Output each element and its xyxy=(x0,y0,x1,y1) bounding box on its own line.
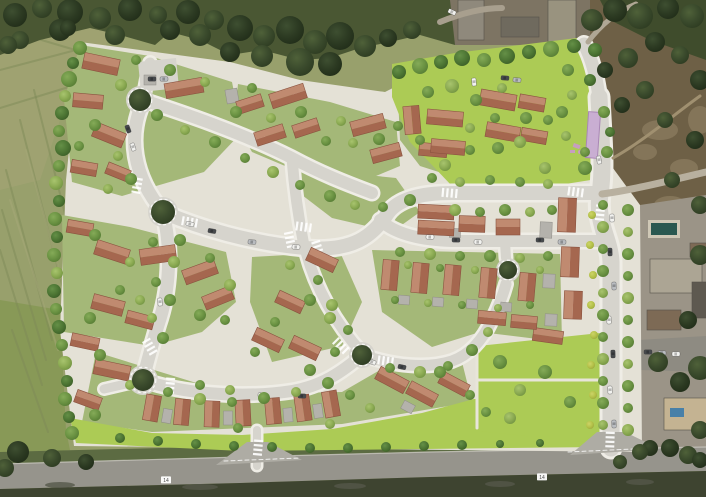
garage xyxy=(545,314,557,326)
tree xyxy=(151,109,163,121)
tree xyxy=(59,90,71,102)
tree xyxy=(227,15,253,41)
tree xyxy=(350,200,360,210)
tree xyxy=(671,46,689,64)
tree xyxy=(253,25,275,47)
tree xyxy=(434,55,448,69)
vegetation-patch xyxy=(45,482,75,488)
tree xyxy=(318,52,342,76)
tree xyxy=(325,419,335,429)
tree xyxy=(499,204,511,216)
car xyxy=(471,78,476,86)
tree xyxy=(525,207,535,217)
tree xyxy=(623,315,633,325)
tree xyxy=(326,299,338,311)
tree xyxy=(587,361,595,369)
tree xyxy=(247,83,257,93)
tree xyxy=(60,20,76,36)
tree xyxy=(209,136,221,148)
tree xyxy=(151,200,175,224)
tree xyxy=(670,372,690,392)
tree xyxy=(305,443,315,453)
tree xyxy=(174,234,186,246)
tree xyxy=(348,138,358,148)
tree xyxy=(258,392,270,404)
tree xyxy=(580,147,590,157)
tree xyxy=(240,153,250,163)
tree xyxy=(113,151,123,161)
tree xyxy=(148,237,158,247)
svg-text:14: 14 xyxy=(539,475,545,481)
tree xyxy=(322,377,334,389)
car xyxy=(612,420,617,428)
house xyxy=(557,198,576,233)
car xyxy=(513,77,521,82)
tree xyxy=(89,229,101,241)
tree xyxy=(304,294,316,306)
tree xyxy=(89,119,101,131)
tree xyxy=(225,385,235,395)
tree xyxy=(598,106,610,118)
tree xyxy=(588,211,596,219)
tree xyxy=(586,241,594,249)
tree xyxy=(58,356,72,370)
tree xyxy=(326,22,354,50)
house xyxy=(235,400,251,427)
house xyxy=(426,109,463,127)
tree xyxy=(679,311,697,329)
tree xyxy=(295,180,305,190)
tree xyxy=(354,35,376,57)
small-pool xyxy=(670,408,684,417)
tree xyxy=(251,45,273,67)
car xyxy=(292,245,300,250)
car xyxy=(160,77,168,81)
tree xyxy=(567,39,581,53)
house xyxy=(560,247,579,278)
tree xyxy=(51,231,63,243)
tree xyxy=(520,112,532,124)
house xyxy=(173,398,190,425)
tree xyxy=(61,71,77,87)
tree xyxy=(403,21,421,39)
tree xyxy=(131,55,141,65)
tree xyxy=(458,301,466,309)
tree xyxy=(618,48,638,68)
tree xyxy=(330,347,340,357)
tree xyxy=(61,375,73,387)
tree xyxy=(56,339,68,351)
tree xyxy=(589,271,597,279)
tree xyxy=(434,366,446,378)
car xyxy=(501,75,509,80)
tree xyxy=(499,261,517,279)
tree xyxy=(336,116,346,126)
tree xyxy=(135,295,145,305)
garage xyxy=(313,403,324,418)
tree xyxy=(47,248,61,262)
tree xyxy=(465,145,475,155)
tree xyxy=(470,94,482,106)
tree xyxy=(483,327,493,337)
tree xyxy=(415,135,425,145)
vegetation-patch xyxy=(334,483,366,489)
vegetation-patch xyxy=(626,479,654,485)
tree xyxy=(7,441,29,463)
tree xyxy=(194,309,206,321)
tree xyxy=(567,90,577,100)
tree xyxy=(391,296,399,304)
tree xyxy=(105,25,125,45)
tree xyxy=(484,250,496,262)
scrub-patch xyxy=(633,144,657,160)
house xyxy=(518,272,536,301)
tree xyxy=(194,393,206,405)
tree xyxy=(43,449,61,467)
tree xyxy=(55,140,71,156)
tree xyxy=(598,244,608,254)
car xyxy=(672,352,680,356)
tree xyxy=(267,166,279,178)
lawn-area xyxy=(478,333,602,444)
garage xyxy=(466,299,478,309)
existing-building xyxy=(501,17,539,37)
tree xyxy=(632,444,648,460)
tree xyxy=(589,391,597,399)
garage xyxy=(432,297,444,307)
house xyxy=(430,139,465,156)
tree xyxy=(598,288,608,298)
tree xyxy=(163,387,173,397)
tree xyxy=(657,112,673,128)
tree xyxy=(220,42,240,62)
tree xyxy=(395,247,405,257)
tree xyxy=(63,411,75,423)
tree xyxy=(189,24,211,46)
tree xyxy=(73,41,87,55)
tree xyxy=(378,202,388,212)
tree xyxy=(454,50,470,66)
existing-building xyxy=(548,0,576,42)
house xyxy=(479,267,498,298)
tree xyxy=(276,16,304,44)
car xyxy=(474,240,482,245)
tree xyxy=(233,423,243,433)
tree xyxy=(536,439,544,447)
tree xyxy=(89,409,101,421)
tree xyxy=(176,0,200,24)
tree xyxy=(597,353,609,365)
car xyxy=(558,240,566,245)
garage xyxy=(283,408,293,423)
tree xyxy=(496,440,504,448)
tree xyxy=(373,133,385,145)
masterplan-aerial-view: 1414 xyxy=(0,0,706,497)
tree xyxy=(55,106,69,120)
tree xyxy=(499,48,515,64)
tree xyxy=(584,74,596,86)
car xyxy=(608,248,613,256)
tree xyxy=(526,301,534,309)
tree xyxy=(515,253,525,263)
tree xyxy=(324,312,336,324)
tree xyxy=(627,3,653,29)
tree xyxy=(250,347,260,357)
tree xyxy=(419,441,429,451)
tree xyxy=(515,177,525,187)
tree xyxy=(180,125,190,135)
tree xyxy=(51,267,63,279)
tree xyxy=(424,248,436,260)
tree xyxy=(436,264,444,272)
tree xyxy=(543,115,553,125)
masterplan-canvas: 1414 xyxy=(0,0,706,497)
tree xyxy=(84,312,96,324)
tree xyxy=(74,141,84,151)
tree xyxy=(160,20,180,40)
tree xyxy=(295,106,307,118)
tree xyxy=(345,390,355,400)
tree xyxy=(50,303,62,315)
tree xyxy=(404,194,416,206)
tree xyxy=(636,81,654,99)
house xyxy=(411,262,430,293)
tree xyxy=(455,177,465,187)
tree xyxy=(414,366,426,378)
tree xyxy=(613,455,627,469)
tree xyxy=(561,131,571,141)
tree xyxy=(424,299,432,307)
tree xyxy=(381,442,391,452)
tree xyxy=(536,266,544,274)
tree xyxy=(115,433,125,443)
tree xyxy=(494,304,502,312)
tree xyxy=(455,251,465,261)
tree xyxy=(270,317,280,327)
tree xyxy=(47,284,61,298)
tree xyxy=(514,136,526,148)
tree xyxy=(227,397,237,407)
vegetation-patch xyxy=(182,484,218,490)
tree xyxy=(581,9,603,31)
tree xyxy=(404,261,412,269)
tree xyxy=(465,123,475,133)
tree xyxy=(564,396,576,408)
car xyxy=(611,350,616,358)
tree xyxy=(485,175,495,185)
house xyxy=(381,259,400,290)
house xyxy=(459,216,486,233)
tree xyxy=(53,195,65,207)
tree xyxy=(343,325,353,335)
tree xyxy=(445,79,459,93)
tree xyxy=(661,439,679,457)
tree xyxy=(490,113,500,123)
car xyxy=(612,282,617,290)
tree xyxy=(471,266,479,274)
tree xyxy=(597,62,613,78)
tree xyxy=(115,285,125,295)
house xyxy=(204,401,220,428)
tree xyxy=(220,315,230,325)
tree xyxy=(514,384,526,396)
tree xyxy=(266,113,276,123)
tree xyxy=(48,212,62,226)
tree xyxy=(365,403,375,413)
tree xyxy=(539,162,551,174)
tree xyxy=(200,77,210,87)
house xyxy=(72,93,103,110)
tree xyxy=(195,380,205,390)
tree xyxy=(343,443,353,453)
tree xyxy=(103,184,113,194)
garage xyxy=(543,274,555,288)
tree xyxy=(149,6,167,24)
tree xyxy=(578,161,592,175)
house xyxy=(496,219,520,235)
tree xyxy=(622,424,634,436)
existing-building xyxy=(692,282,706,318)
tree xyxy=(321,136,331,146)
tree xyxy=(648,352,668,372)
tree xyxy=(313,275,323,285)
tree xyxy=(605,127,615,137)
tree xyxy=(267,442,277,452)
house xyxy=(418,220,455,236)
tree xyxy=(153,436,163,446)
tree xyxy=(598,200,608,210)
tree xyxy=(622,204,634,216)
tree xyxy=(125,257,135,267)
tree xyxy=(622,336,634,348)
tree xyxy=(129,89,151,111)
tree xyxy=(547,205,557,215)
tree xyxy=(597,221,609,233)
tree xyxy=(3,3,27,27)
tree xyxy=(586,421,594,429)
tree xyxy=(147,313,157,323)
house xyxy=(443,264,462,295)
tree xyxy=(94,349,106,361)
tree xyxy=(53,125,65,137)
tree xyxy=(151,277,161,287)
tree xyxy=(286,48,314,76)
house xyxy=(564,291,583,320)
tree xyxy=(493,355,507,369)
garage xyxy=(398,295,410,305)
tree xyxy=(78,454,94,470)
car xyxy=(644,350,652,354)
tree xyxy=(385,363,395,373)
tree xyxy=(597,309,609,321)
car xyxy=(536,238,544,243)
swimming-pool xyxy=(651,223,677,235)
tree xyxy=(475,207,485,217)
vegetation-patch xyxy=(485,481,515,487)
tree xyxy=(481,407,491,417)
tree xyxy=(645,32,665,52)
tree xyxy=(53,160,65,172)
tree xyxy=(412,58,428,74)
tree xyxy=(590,331,598,339)
tree xyxy=(422,86,434,98)
tree xyxy=(587,301,595,309)
tree xyxy=(623,271,633,281)
house xyxy=(403,105,421,134)
tree xyxy=(556,106,568,118)
tree xyxy=(622,292,634,304)
tree xyxy=(304,364,316,376)
tree xyxy=(58,392,72,406)
house xyxy=(418,204,455,220)
car xyxy=(452,238,460,243)
tree xyxy=(379,29,397,47)
house xyxy=(510,314,537,329)
garage xyxy=(224,411,233,425)
tree xyxy=(164,64,176,76)
road-sign-label: 14 xyxy=(161,476,171,483)
tree xyxy=(157,332,169,344)
tree xyxy=(191,439,201,449)
tree xyxy=(601,146,613,158)
tree xyxy=(543,41,559,57)
tree xyxy=(622,380,634,392)
car xyxy=(608,386,613,394)
tree xyxy=(427,173,437,183)
existing-building xyxy=(458,0,484,40)
garage xyxy=(540,222,553,238)
tree xyxy=(65,426,79,440)
tree xyxy=(164,294,176,306)
tree xyxy=(224,279,236,291)
tree xyxy=(543,179,553,189)
tree xyxy=(598,420,608,430)
tree xyxy=(352,345,372,365)
tree xyxy=(291,387,301,397)
tree xyxy=(115,79,127,91)
tree xyxy=(664,172,680,188)
tree xyxy=(477,53,491,67)
road-sign-label: 14 xyxy=(537,473,547,480)
tree xyxy=(324,190,336,202)
tree xyxy=(465,390,475,400)
tree xyxy=(168,256,180,268)
tree xyxy=(457,440,467,450)
tree xyxy=(598,376,608,386)
tree xyxy=(205,253,215,263)
tree xyxy=(492,142,504,154)
tree xyxy=(285,260,295,270)
tree xyxy=(49,176,63,190)
garage xyxy=(500,302,512,312)
tree xyxy=(393,121,403,131)
tree xyxy=(497,83,507,93)
tree xyxy=(439,159,451,171)
tree xyxy=(504,412,516,424)
tree xyxy=(686,131,704,149)
tree xyxy=(598,332,608,342)
tree xyxy=(614,97,630,113)
car xyxy=(157,298,162,306)
tree xyxy=(623,403,633,413)
tree xyxy=(680,4,704,28)
tree xyxy=(543,251,553,261)
tree xyxy=(538,365,552,379)
tree xyxy=(466,344,478,356)
tree xyxy=(229,441,239,451)
tree xyxy=(588,43,602,57)
tree xyxy=(392,65,406,79)
